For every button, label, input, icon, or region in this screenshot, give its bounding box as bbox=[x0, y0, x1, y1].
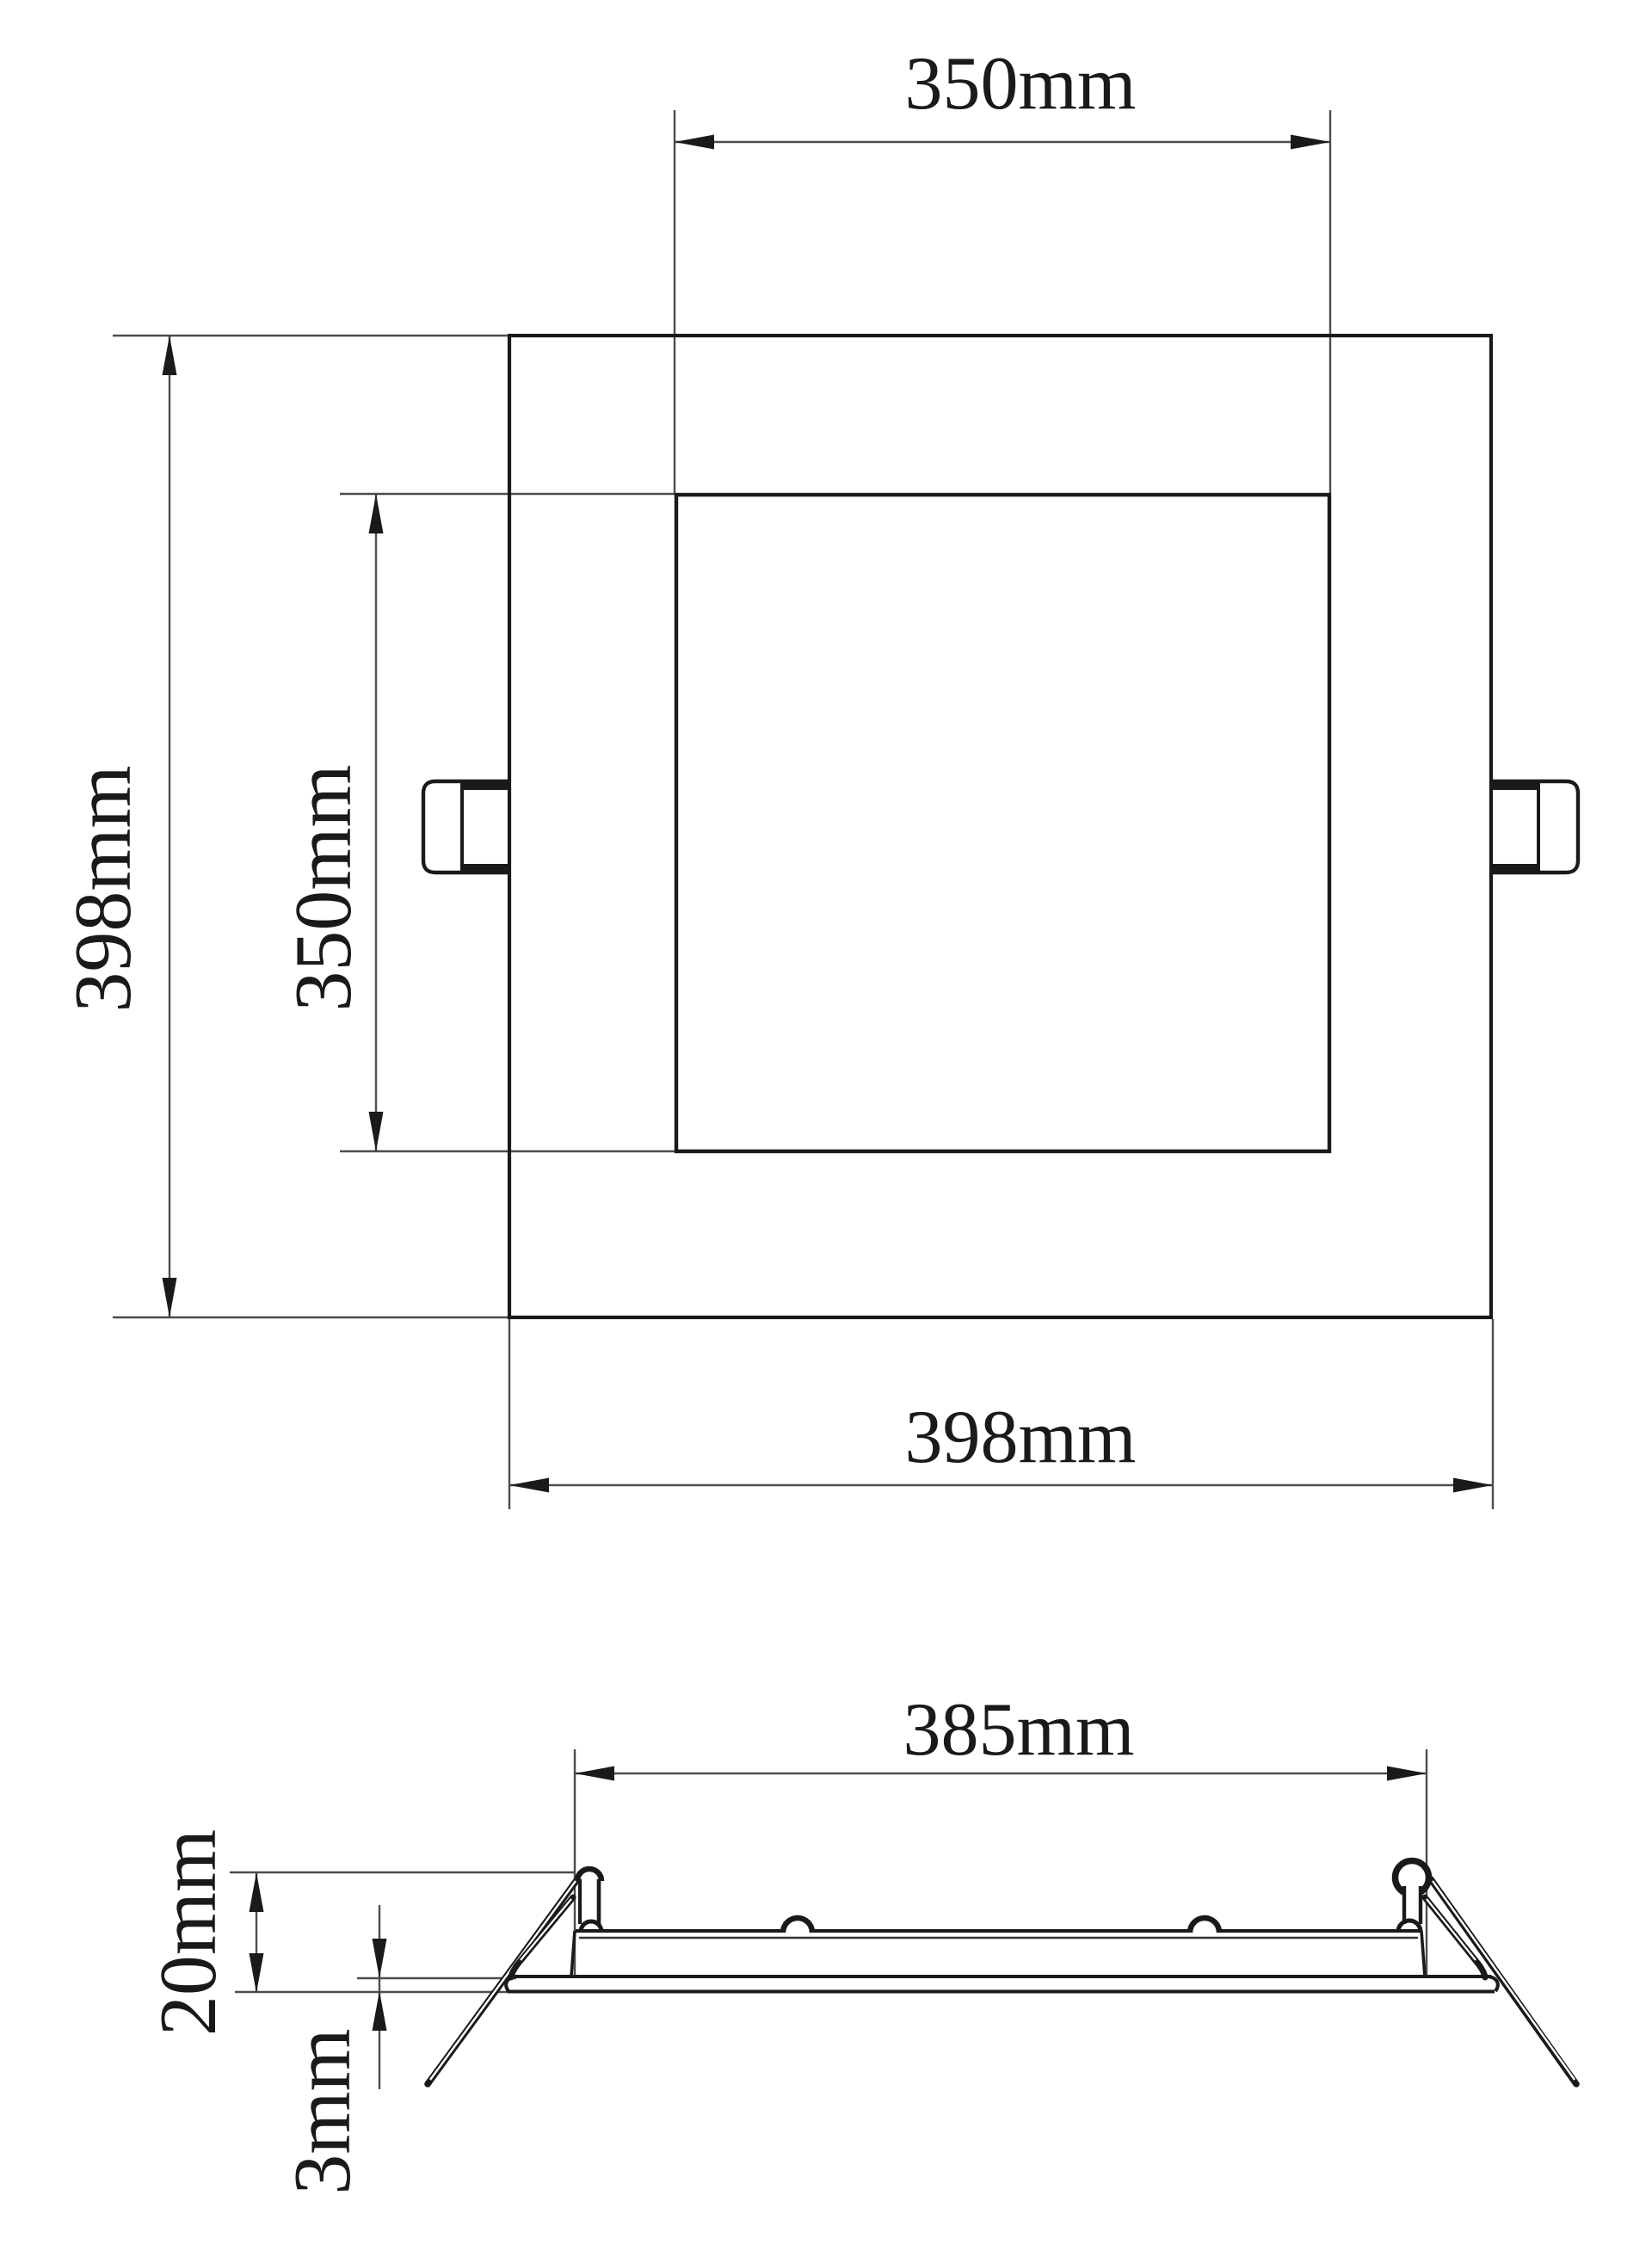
svg-text:398mm: 398mm bbox=[59, 765, 148, 1012]
svg-text:20mm: 20mm bbox=[144, 1829, 233, 2036]
svg-text:350mm: 350mm bbox=[279, 764, 368, 1011]
svg-text:385mm: 385mm bbox=[903, 1688, 1135, 1772]
svg-text:350mm: 350mm bbox=[905, 42, 1137, 126]
svg-text:3mm: 3mm bbox=[278, 2028, 367, 2194]
svg-text:398mm: 398mm bbox=[905, 1396, 1137, 1479]
